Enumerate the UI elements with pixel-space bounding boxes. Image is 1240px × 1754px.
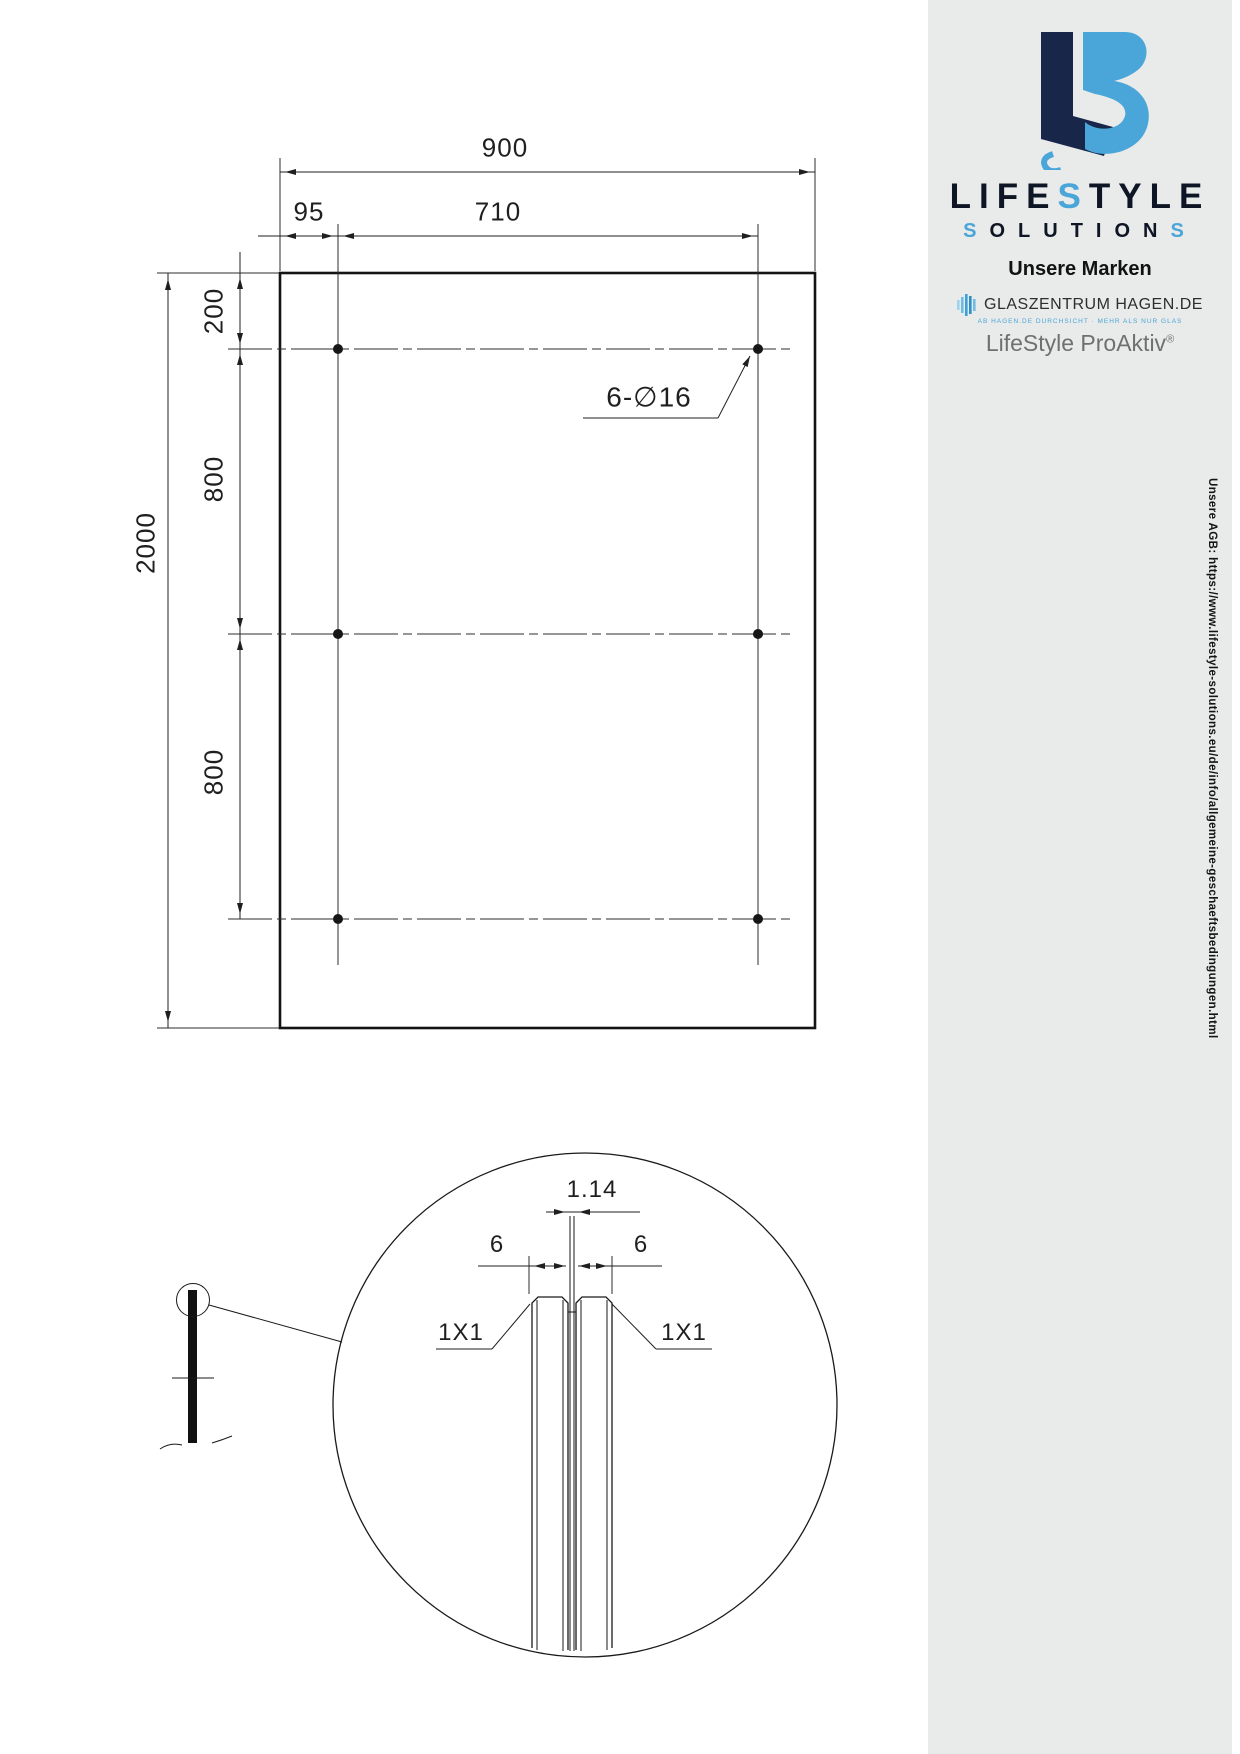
edge-side-view: [160, 1284, 342, 1450]
glass-panel-drawing: [0, 0, 930, 1754]
logo-wordmark-lifestyle: LIFESTYLE: [928, 177, 1232, 217]
company-sidebar: LIFESTYLE SOLUTIONS Unsere Marken GLASZE…: [928, 0, 1232, 1754]
detail-chamfer-left-label: 1X1: [438, 1319, 484, 1347]
lifestyle-logo: LIFESTYLE SOLUTIONS: [928, 28, 1232, 243]
detail-pane-left-dim: 6: [490, 1231, 504, 1259]
proaktiv-name: LifeStyle ProAktiv: [986, 330, 1166, 356]
dim-hole-span: 710: [475, 197, 521, 228]
brand-glaszentrum: GLASZENTRUM HAGEN.DE: [928, 292, 1232, 318]
logo-word1-post: TYLE: [1089, 177, 1210, 217]
logo-word2-s2: S: [1171, 220, 1197, 243]
glaszentrum-name: GLASZENTRUM HAGEN.DE: [984, 296, 1203, 314]
dim-top-margin: 200: [199, 288, 230, 334]
brands-heading: Unsere Marken: [928, 258, 1232, 281]
logo-word2-mid: OLUTION: [990, 220, 1171, 243]
detail-gap-dim: 1.14: [567, 1176, 618, 1204]
logo-word1-s: S: [1058, 177, 1089, 217]
lifestyle-monogram-icon: [995, 28, 1165, 170]
dim-left-offset: 95: [294, 197, 325, 228]
glaszentrum-bars-icon: [957, 292, 979, 318]
monogram-tail: [1044, 154, 1061, 170]
hole-centerlines: [228, 349, 790, 919]
extension-lines: [157, 158, 815, 1294]
logo-wordmark-solutions: SOLUTIONS: [928, 220, 1232, 243]
brand-proaktiv: LifeStyle ProAktiv®: [928, 330, 1232, 357]
agb-vertical-link[interactable]: Unsere AGB: https://www.lifestyle-soluti…: [1206, 478, 1218, 1039]
logo-word1-pre: LIFE: [950, 177, 1058, 217]
edge-detail-circle: [333, 1153, 837, 1657]
monogram-s: [1083, 32, 1149, 154]
glaszentrum-tagline: AB HAGEN.DE DURCHSICHT · MEHR ALS NUR GL…: [928, 318, 1232, 325]
dim-total-width: 900: [482, 133, 528, 164]
dimension-lines: [168, 172, 815, 1028]
detail-pane-right-dim: 6: [634, 1231, 648, 1259]
dim-total-height: 2000: [131, 512, 162, 574]
registered-mark: ®: [1166, 333, 1174, 345]
logo-word2-s1: S: [963, 220, 989, 243]
dim-row-gap-2: 800: [199, 749, 230, 795]
datasheet-page: 900 95 710 200 800 800 2000 6-∅16 1.14 6…: [0, 0, 1240, 1754]
detail-chamfer-right-label: 1X1: [661, 1319, 707, 1347]
holes-spec-label: 6-∅16: [606, 381, 691, 414]
dim-row-gap-1: 800: [199, 456, 230, 502]
